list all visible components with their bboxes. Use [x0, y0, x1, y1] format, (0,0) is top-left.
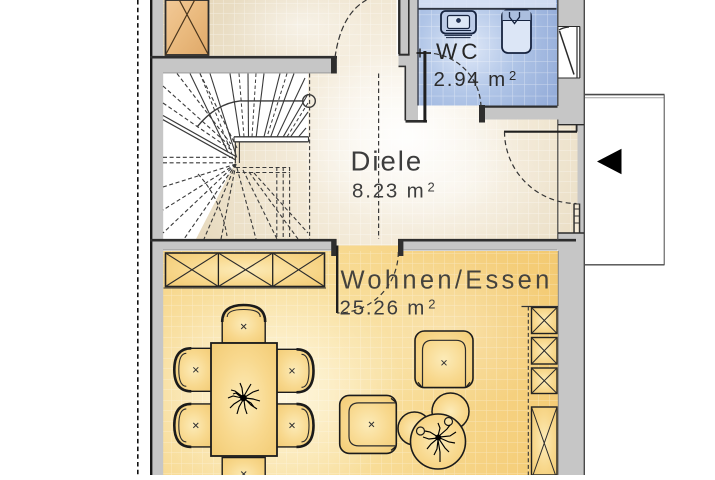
svg-text:2.94 m2: 2.94 m2	[434, 68, 519, 91]
svg-text:WC: WC	[436, 39, 482, 64]
svg-text:Wohnen/Essen: Wohnen/Essen	[341, 267, 553, 295]
svg-text:8.23 m2: 8.23 m2	[352, 180, 437, 203]
svg-text:Diele: Diele	[351, 146, 424, 177]
svg-text:25.26 m2: 25.26 m2	[340, 297, 438, 320]
